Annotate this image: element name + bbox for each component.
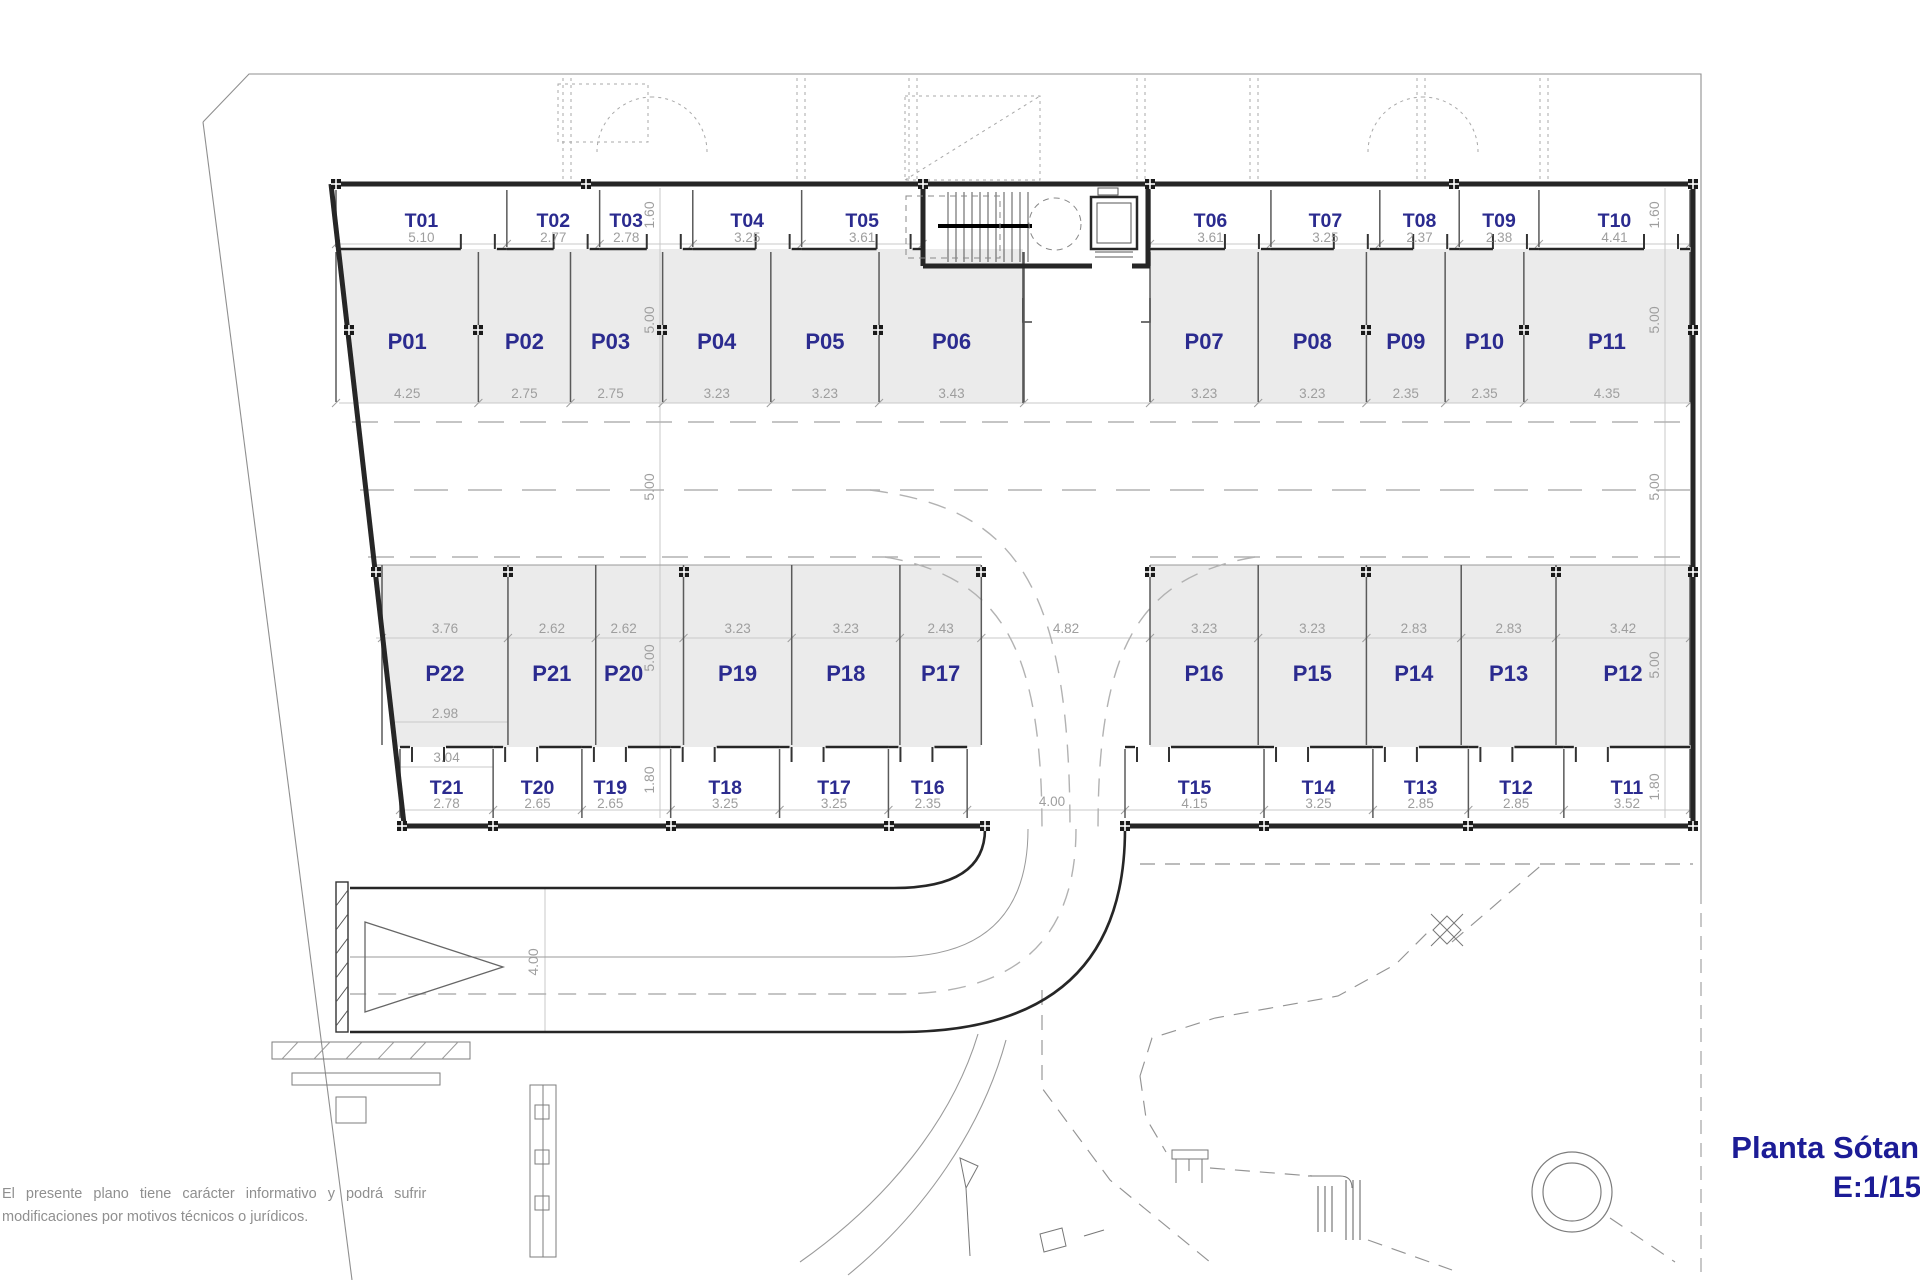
unit-label-P16: P16 — [1185, 661, 1224, 686]
ramp-end-hatch — [336, 986, 348, 1002]
ramp-end-hatch — [336, 914, 348, 930]
door-swing-arc — [1423, 97, 1478, 152]
ramp-direction-arrow — [365, 922, 503, 1012]
dim-storage-row-opening: 4.00 — [1039, 794, 1065, 809]
retaining-strip — [292, 1073, 440, 1085]
depth-dim-right-2: 5.00 — [1646, 473, 1662, 500]
unit-label-P10: P10 — [1465, 329, 1504, 354]
unit-dim-T14: 3.25 — [1305, 796, 1331, 811]
strip-hatch — [346, 1042, 362, 1059]
ramp-end-wall — [336, 882, 348, 1032]
unit-dim-P08: 3.23 — [1299, 386, 1325, 401]
unit-label-P02: P02 — [505, 329, 544, 354]
unit-dim-T06: 3.61 — [1197, 230, 1223, 245]
retaining-strip — [272, 1042, 470, 1059]
strip-hatch — [442, 1042, 458, 1059]
unit-label-P06: P06 — [932, 329, 971, 354]
unit-dim-T05: 3.61 — [849, 230, 875, 245]
unit-label-T03: T03 — [609, 210, 643, 232]
unit-label-T05: T05 — [845, 210, 879, 232]
terrain-dashed-line — [1368, 1240, 1452, 1270]
unit-dim-P11: 4.35 — [1594, 386, 1620, 401]
floor-plan-page: T015.10T022.77T032.78T043.25T053.61T063.… — [0, 0, 1920, 1280]
terrain-dashed-line — [1610, 1218, 1675, 1262]
disclaimer-line-2: modificaciones por motivos técnicos o ju… — [2, 1206, 562, 1229]
unit-dim-P17: 2.43 — [927, 621, 953, 636]
dim-ramp-lane-width: 4.00 — [525, 948, 541, 975]
unit-dim-P15: 3.23 — [1299, 621, 1325, 636]
door-swing-arc — [597, 97, 652, 152]
disclaimer-note: El presente plano tiene carácter informa… — [2, 1183, 562, 1229]
drain-grate-box — [535, 1150, 549, 1164]
unit-label-P15: P15 — [1293, 661, 1332, 686]
disclaimer-line-1: El presente plano tiene carácter informa… — [2, 1183, 562, 1206]
unit-dim-P07: 3.23 — [1191, 386, 1217, 401]
ramp-wall-inner — [350, 829, 985, 888]
unit-dim-T21: 2.78 — [433, 796, 459, 811]
unit-label-P07: P07 — [1185, 329, 1224, 354]
unit-label-P18: P18 — [826, 661, 865, 686]
door-jamb — [1141, 298, 1150, 322]
unit-dim-P14: 2.83 — [1401, 621, 1427, 636]
unit-label-P12: P12 — [1603, 661, 1642, 686]
unit-dim-T07: 3.25 — [1312, 230, 1338, 245]
ramp-center-dashed — [350, 829, 1076, 994]
elevator-shaft — [1091, 197, 1137, 249]
unit-dim-T09: 2.38 — [1486, 230, 1512, 245]
marker-pad — [1040, 1228, 1066, 1252]
lower-parking-fill-left — [374, 565, 981, 747]
unit-label-P17: P17 — [921, 661, 960, 686]
depth-dim-right-4: 1.80 — [1646, 773, 1662, 800]
ramp-end-hatch — [336, 938, 348, 954]
ramp-lane-line — [350, 829, 1028, 957]
unit-label-P22: P22 — [425, 661, 464, 686]
unit-dim-T13: 2.85 — [1407, 796, 1433, 811]
terrain-dashed-line — [1452, 862, 1545, 942]
unit-dim-T19: 2.65 — [597, 796, 623, 811]
lower-parking-fill-right — [1150, 565, 1690, 747]
unit-dim-P12: 3.42 — [1610, 621, 1636, 636]
strip-hatch — [378, 1042, 394, 1059]
depth-dim-left-4: 1.80 — [641, 766, 657, 793]
unit-dim-P05: 3.23 — [812, 386, 838, 401]
drain-grate-box — [535, 1105, 549, 1119]
turning-circle — [1029, 198, 1081, 250]
ramp-end-hatch — [336, 962, 348, 978]
small-pit — [336, 1097, 366, 1123]
unit-dim2-P22: 2.98 — [432, 706, 458, 721]
well-circle-outer — [1532, 1152, 1612, 1232]
depth-dim-right-3: 5.00 — [1646, 651, 1662, 678]
unit-label-T02: T02 — [536, 210, 570, 232]
unit-label-P09: P09 — [1386, 329, 1425, 354]
unit-dim-T12: 2.85 — [1503, 796, 1529, 811]
unit-dim-T03: 2.78 — [613, 230, 639, 245]
unit-label-P04: P04 — [697, 329, 737, 354]
unit-dim-P21: 2.62 — [539, 621, 565, 636]
unit-label-T06: T06 — [1194, 210, 1228, 232]
unit-dim-T01: 5.10 — [408, 230, 434, 245]
unit-dim-P04: 3.23 — [704, 386, 730, 401]
floor-plan-drawing: T015.10T022.77T032.78T043.25T053.61T063.… — [0, 0, 1920, 1280]
unit-label-P19: P19 — [718, 661, 757, 686]
unit-label-P13: P13 — [1489, 661, 1528, 686]
depth-dim-left-0: 1.60 — [641, 201, 657, 228]
path-curve — [800, 1034, 978, 1262]
terrain-dashed-line — [1140, 930, 1430, 1076]
terrain-dashed-line — [1042, 990, 1210, 1262]
unit-dim-P02: 2.75 — [511, 386, 537, 401]
unit-label-P20: P20 — [604, 661, 643, 686]
unit-label-T10: T10 — [1598, 210, 1632, 232]
depth-dim-right-0: 1.60 — [1646, 201, 1662, 228]
unit-label-P21: P21 — [532, 661, 571, 686]
unit-label-T01: T01 — [405, 210, 439, 232]
unit-label-P08: P08 — [1293, 329, 1332, 354]
depth-dim-left-1: 5.00 — [641, 306, 657, 333]
unit-dim-P10: 2.35 — [1471, 386, 1497, 401]
unit-label-P05: P05 — [805, 329, 844, 354]
unit-label-T07: T07 — [1309, 210, 1343, 232]
plan-scale: E:1/150 — [1731, 1168, 1920, 1207]
unit-dim-T20: 2.65 — [524, 796, 550, 811]
unit-dim-P18: 3.23 — [833, 621, 859, 636]
unit-dim-T15: 4.15 — [1181, 796, 1207, 811]
plan-title-block: Planta Sótano E:1/150 — [1731, 1128, 1920, 1207]
unit-dim-T08: 2.37 — [1406, 230, 1432, 245]
unit-dim-P09: 2.35 — [1393, 386, 1419, 401]
unit-dim-T17: 3.25 — [821, 796, 847, 811]
unit-label-P11: P11 — [1588, 329, 1626, 354]
strip-hatch — [410, 1042, 426, 1059]
ramp-end-hatch — [336, 890, 348, 906]
unit-dim-P16: 3.23 — [1191, 621, 1217, 636]
unit-dim-T02: 2.77 — [540, 230, 566, 245]
unit-dim-T10: 4.41 — [1601, 230, 1627, 245]
plan-title: Planta Sótano — [1731, 1128, 1920, 1168]
door-swing-arc — [1368, 97, 1423, 152]
unit-dim-P20: 2.62 — [610, 621, 636, 636]
unit-dim-T04: 3.25 — [734, 230, 760, 245]
strip-hatch — [282, 1042, 298, 1059]
unit-label-T08: T08 — [1403, 210, 1437, 232]
unit-dim-P19: 3.23 — [724, 621, 750, 636]
unit-label-P03: P03 — [591, 329, 630, 354]
entrance-footprint-diagonal — [905, 96, 1040, 180]
unit-dim2-T21: 3.04 — [433, 750, 460, 765]
marker-pole — [966, 1188, 970, 1256]
unit-dim-T11: 3.52 — [1614, 796, 1640, 811]
depth-dim-left-2: 5.00 — [641, 473, 657, 500]
unit-dim-P03: 2.75 — [597, 386, 623, 401]
depth-dim-left-3: 5.00 — [641, 644, 657, 671]
well-circle-inner — [1543, 1163, 1601, 1221]
unit-label-T09: T09 — [1482, 210, 1516, 232]
survey-marker-cross — [1431, 914, 1463, 946]
marker-flag — [960, 1158, 978, 1188]
depth-dim-right-1: 5.00 — [1646, 306, 1662, 333]
dim-parking-bay-opening: 4.82 — [1053, 621, 1079, 636]
unit-dim-P22: 3.76 — [432, 621, 458, 636]
unit-label-T04: T04 — [730, 210, 764, 232]
elevator-machine — [1098, 188, 1118, 195]
marker-tick — [1084, 1230, 1104, 1236]
terrain-dashed-line — [1140, 1076, 1166, 1152]
unit-dim-T16: 2.35 — [915, 796, 941, 811]
unit-dim-P13: 2.83 — [1495, 621, 1521, 636]
unit-dim-P06: 3.43 — [938, 386, 964, 401]
unit-label-P01: P01 — [388, 329, 427, 354]
ramp-wall-outer — [350, 829, 1125, 1032]
upper-parking-fill-left — [339, 249, 1023, 403]
door-swing-arc — [652, 97, 707, 152]
terrain-dashed-line — [1210, 1168, 1312, 1176]
unit-dim-P01: 4.25 — [394, 386, 420, 401]
path-curve — [848, 1040, 1006, 1275]
unit-dim-T18: 3.25 — [712, 796, 738, 811]
upper-parking-fill-right — [1150, 249, 1690, 403]
bench-top — [1172, 1150, 1208, 1159]
dotted-decor — [558, 78, 1548, 182]
property-line-left — [203, 122, 352, 1280]
unit-label-P14: P14 — [1394, 661, 1434, 686]
ramp-end-hatch — [336, 1010, 348, 1026]
